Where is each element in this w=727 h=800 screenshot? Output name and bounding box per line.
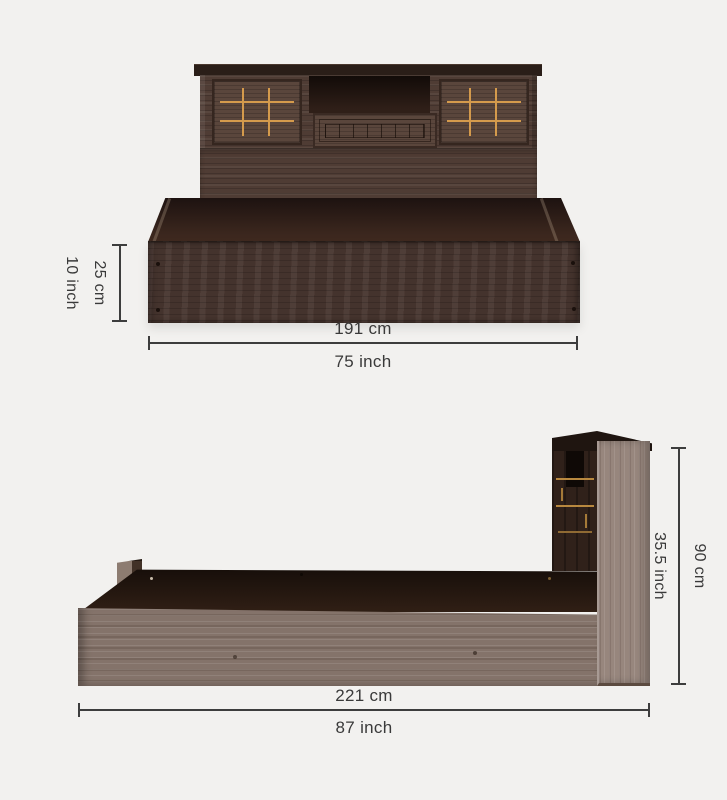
headboard-side-pillar [597,441,650,686]
side-height-inch-label: 35.5 inch [650,532,668,600]
screw-dot [300,573,303,576]
dimension-cap [648,703,650,717]
bed-dimension-diagram: 25 cm 10 inch 191 cm 75 inch 35.5 inch 9 [0,0,727,800]
gold-shelf-line [556,478,594,480]
gold-shelf-line [556,505,594,507]
dimension-cap [671,683,686,685]
dimension-cap [78,703,80,717]
screw-dot [548,577,551,580]
headboard-shelf-recess [566,447,584,487]
side-length-dimension-line [78,709,650,711]
side-view-figure: 35.5 inch 90 cm 221 cm 87 inch [0,0,727,800]
gold-shelf-tick [585,514,587,528]
side-height-dimension-line [678,448,680,684]
wood-knot [233,655,237,659]
gold-shelf-tick [561,488,563,501]
side-length-inch-label: 87 inch [336,718,393,738]
side-height-cm-label: 90 cm [690,543,708,588]
side-rail-face [78,603,597,686]
bed-deck-surface-side [80,566,597,612]
screw-dot [150,577,153,580]
side-length-cm-label: 221 cm [335,686,393,706]
gold-shelf-line [558,531,592,533]
dimension-cap [671,447,686,449]
wood-knot [473,651,477,655]
